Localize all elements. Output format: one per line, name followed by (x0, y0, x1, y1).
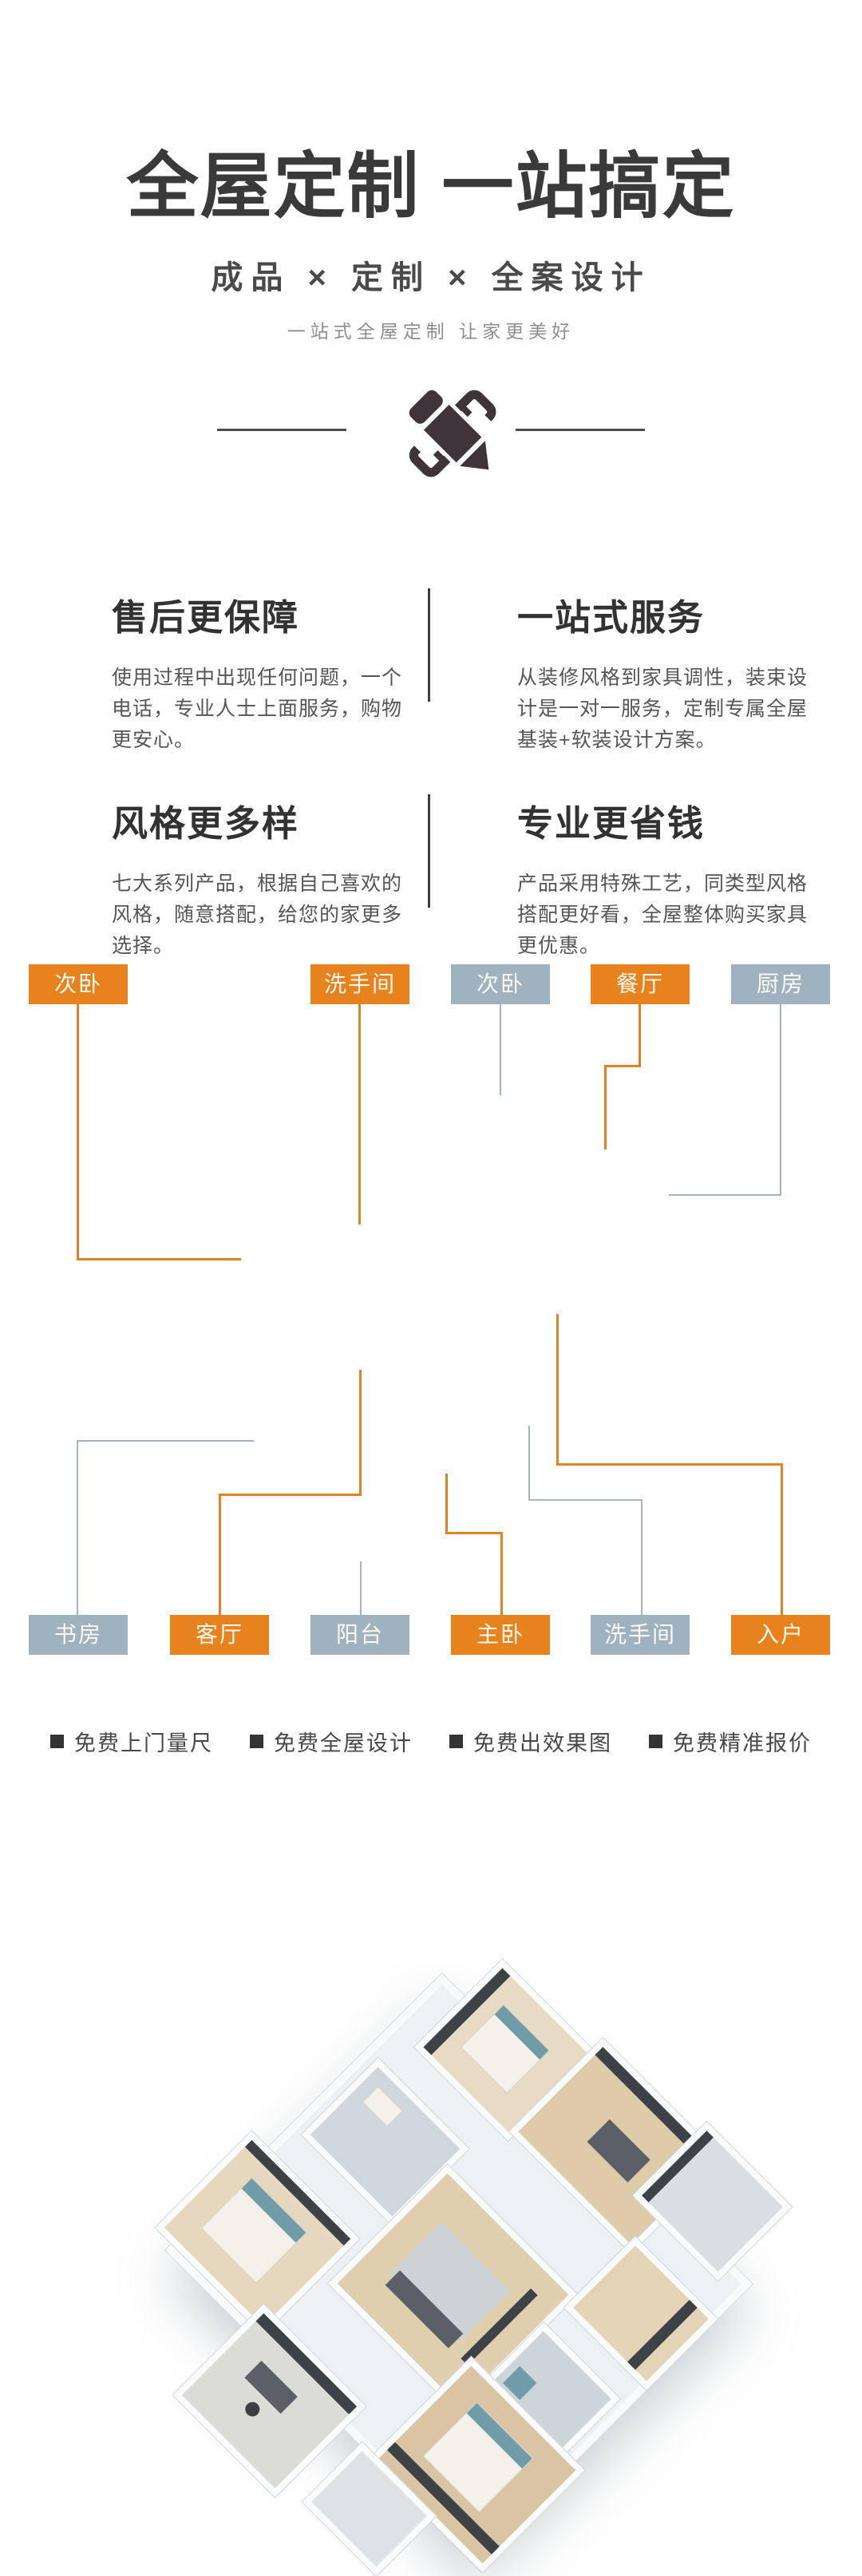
leader-living (359, 1370, 362, 1494)
square-bullet-icon (50, 1735, 64, 1748)
label-master-bedroom: 主卧 (451, 1615, 550, 1655)
label-dining: 餐厅 (591, 964, 690, 1004)
footer-item-label: 免费出效果图 (473, 1726, 612, 1757)
feature-divider-bottom (428, 794, 430, 908)
leader-study (77, 1440, 78, 1615)
pencil-ruler-icon (388, 369, 516, 497)
feature-desc: 产品采用特殊工艺，同类型风格搭配更好看，全屋整体购买家具更优惠。 (517, 869, 809, 962)
square-bullet-icon (449, 1735, 463, 1748)
leader-dining (604, 1065, 641, 1067)
label-kitchen: 厨房 (731, 964, 830, 1004)
square-bullet-icon (250, 1735, 263, 1748)
page-tagline: 一站式全屋定制 让家更美好 (0, 316, 862, 343)
footer-item-label: 免费上门量尺 (74, 1726, 213, 1757)
label-balcony: 阳台 (310, 1615, 409, 1655)
label-entrance: 入户 (731, 1615, 830, 1655)
feature-divider-top (428, 588, 430, 702)
feature-title: 一站式服务 (517, 588, 809, 640)
leader-kitchen (669, 1194, 781, 1196)
leader-entrance (556, 1463, 783, 1466)
leader-bath-top (358, 1004, 361, 1225)
leader-kitchen (780, 1004, 781, 1194)
footer-item: 免费精准报价 (649, 1726, 812, 1757)
leader-study (77, 1440, 254, 1442)
footer-item-label: 免费全屋设计 (274, 1726, 413, 1757)
divider-right (516, 429, 645, 431)
leader-bath-bottom (528, 1499, 643, 1501)
feature-title: 售后更保障 (112, 588, 403, 640)
feature-savings: 专业更省钱 产品采用特殊工艺，同类型风格搭配更好看，全屋整体购买家具更优惠。 (517, 794, 809, 962)
label-living: 客厅 (170, 1615, 269, 1655)
leader-bedroom1 (77, 1258, 241, 1260)
feature-desc: 从装修风格到家具调性，装束设计是一对一服务，定制专属全屋基装+软装设计方案。 (517, 663, 809, 756)
feature-title: 风格更多样 (112, 794, 403, 846)
label-second-bedroom-2: 次卧 (451, 964, 550, 1004)
leader-master (445, 1532, 503, 1534)
footer-item: 免费上门量尺 (50, 1726, 213, 1757)
feature-after-sales: 售后更保障 使用过程中出现任何问题，一个电话，专业人士上面服务，购物更安心。 (112, 588, 403, 756)
feature-desc: 七大系列产品，根据自己喜欢的风格，随意搭配，给您的家更多选择。 (112, 869, 403, 962)
leader-entrance (781, 1463, 783, 1615)
label-bathroom-top: 洗手间 (310, 964, 409, 1004)
label-study: 书房 (29, 1615, 128, 1655)
floorplan-render (0, 958, 862, 1676)
footer-item: 免费出效果图 (449, 1726, 612, 1757)
leader-master (500, 1532, 503, 1615)
leader-bedroom2 (500, 1004, 501, 1095)
leader-entrance (556, 1314, 559, 1463)
feature-styles: 风格更多样 七大系列产品，根据自己喜欢的风格，随意搭配，给您的家更多选择。 (112, 794, 403, 962)
leader-bedroom1 (77, 1004, 79, 1258)
leader-master (445, 1474, 448, 1532)
leader-living (219, 1494, 221, 1615)
square-bullet-icon (649, 1735, 662, 1748)
leader-bath-bottom (528, 1426, 530, 1499)
footer-services: 免费上门量尺 免费全屋设计 免费出效果图 免费精准报价 (0, 1726, 862, 1757)
leader-bath-bottom (641, 1499, 643, 1615)
label-second-bedroom-1: 次卧 (29, 964, 128, 1004)
leader-living (219, 1494, 362, 1496)
leader-dining (604, 1065, 607, 1150)
footer-item: 免费全屋设计 (250, 1726, 413, 1757)
feature-desc: 使用过程中出现任何问题，一个电话，专业人士上面服务，购物更安心。 (112, 663, 403, 756)
leader-balcony (360, 1561, 362, 1615)
feature-title: 专业更省钱 (517, 794, 809, 846)
page-subtitle: 成品 × 定制 × 全案设计 (0, 251, 862, 298)
label-bathroom-bottom: 洗手间 (591, 1615, 690, 1655)
page-title: 全屋定制 一站搞定 (0, 128, 862, 231)
feature-one-stop: 一站式服务 从装修风格到家具调性，装束设计是一对一服务，定制专属全屋基装+软装设… (517, 588, 809, 756)
divider-left (217, 429, 346, 431)
footer-item-label: 免费精准报价 (673, 1726, 812, 1757)
leader-dining (639, 1004, 641, 1065)
